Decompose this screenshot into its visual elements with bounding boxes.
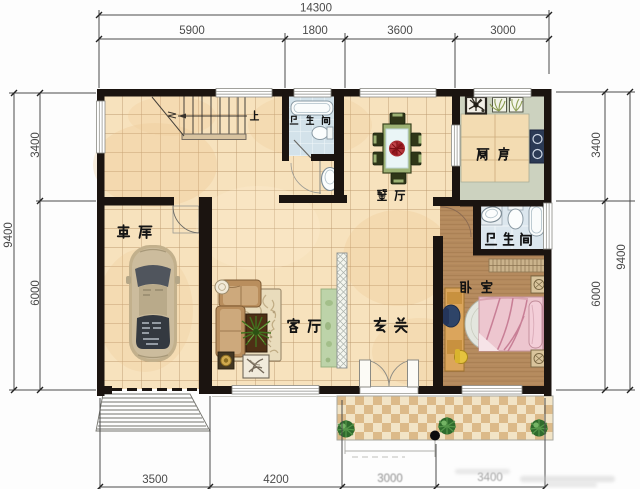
- svg-text:4200: 4200: [263, 474, 289, 486]
- svg-text:14300: 14300: [300, 3, 332, 15]
- svg-text:3600: 3600: [387, 25, 413, 37]
- svg-text:3500: 3500: [142, 474, 168, 486]
- svg-text:9400: 9400: [3, 222, 15, 248]
- svg-text:3400: 3400: [30, 132, 42, 158]
- svg-text:3000: 3000: [377, 473, 403, 485]
- svg-text:5900: 5900: [179, 25, 205, 37]
- svg-text:6000: 6000: [30, 280, 42, 306]
- svg-text:1800: 1800: [302, 25, 328, 37]
- svg-text:9400: 9400: [616, 244, 628, 270]
- svg-text:3400: 3400: [591, 132, 603, 158]
- svg-text:6000: 6000: [591, 281, 603, 307]
- svg-text:3000: 3000: [490, 25, 516, 37]
